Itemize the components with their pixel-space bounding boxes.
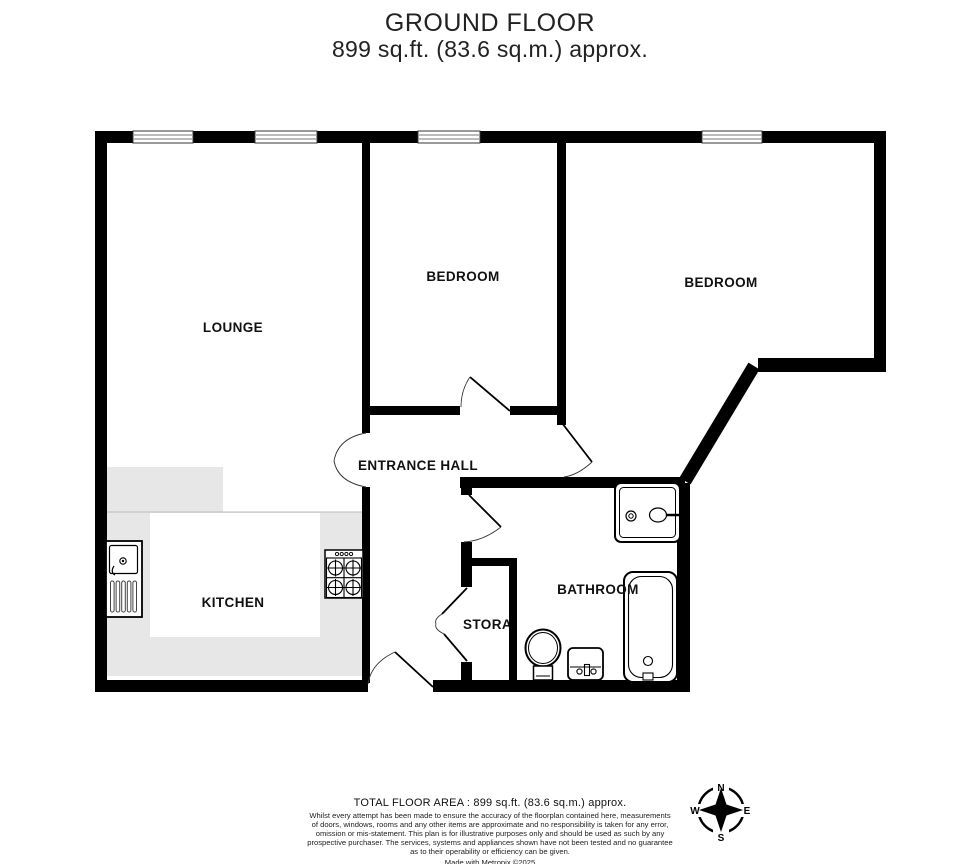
- window-icon: [133, 131, 193, 143]
- wall-storage-right: [509, 558, 517, 680]
- wall-lounge-hall: [362, 143, 370, 433]
- window-icon: [418, 131, 480, 143]
- bathroom-door-icon: [464, 495, 501, 542]
- room-label-kitchen: KITCHEN: [202, 595, 265, 610]
- wall-angled: [685, 366, 754, 481]
- bedroom2-door-icon: [562, 423, 592, 477]
- metropix-credit: Made with Metropix ©2025: [0, 858, 980, 864]
- compass-north-label: N: [717, 783, 724, 794]
- wall-right: [874, 131, 886, 372]
- front-door-icon: [368, 652, 433, 687]
- stove-icon: [325, 550, 363, 598]
- wall-bathroom-left-1: [461, 477, 472, 495]
- bedroom1-door-icon: [461, 377, 510, 411]
- window-icon: [702, 131, 762, 143]
- bathroom-sink-icon: [615, 483, 680, 542]
- total-floor-area: TOTAL FLOOR AREA : 899 sq.ft. (83.6 sq.m…: [0, 797, 980, 809]
- floorplan-drawing: LOUNGE BEDROOM BEDROOM ENTRANCE HALL KIT…: [0, 0, 980, 864]
- wall-bedroom1-bottom-right: [510, 406, 557, 415]
- kitchen-sink-icon: [106, 541, 142, 617]
- wall-bathroom-left-3: [461, 662, 472, 692]
- wall-bottom-left: [95, 680, 368, 692]
- wall-bedroom1-bottom-left: [370, 406, 460, 415]
- wall-top: [95, 131, 886, 143]
- room-label-lounge: LOUNGE: [203, 320, 263, 335]
- room-label-entrance-hall: ENTRANCE HALL: [358, 458, 478, 473]
- toilet-icon: [526, 630, 561, 681]
- room-label-bedroom2: BEDROOM: [684, 275, 757, 290]
- basin-icon: [568, 648, 603, 680]
- room-label-bedroom1: BEDROOM: [426, 269, 499, 284]
- wall-bedroom-divider: [557, 143, 566, 425]
- room-label-storage: STORAGE: [463, 617, 532, 632]
- disclaimer-line: as to their operability or efficiency ca…: [0, 848, 980, 857]
- room-label-bathroom: BATHROOM: [557, 582, 639, 597]
- footer: TOTAL FLOOR AREA : 899 sq.ft. (83.6 sq.m…: [0, 797, 980, 864]
- floorplan-page: GROUND FLOOR 899 sq.ft. (83.6 sq.m.) app…: [0, 0, 980, 864]
- window-icon: [255, 131, 317, 143]
- wall-bay-horizontal: [758, 358, 886, 372]
- kitchen-counter: [107, 467, 362, 676]
